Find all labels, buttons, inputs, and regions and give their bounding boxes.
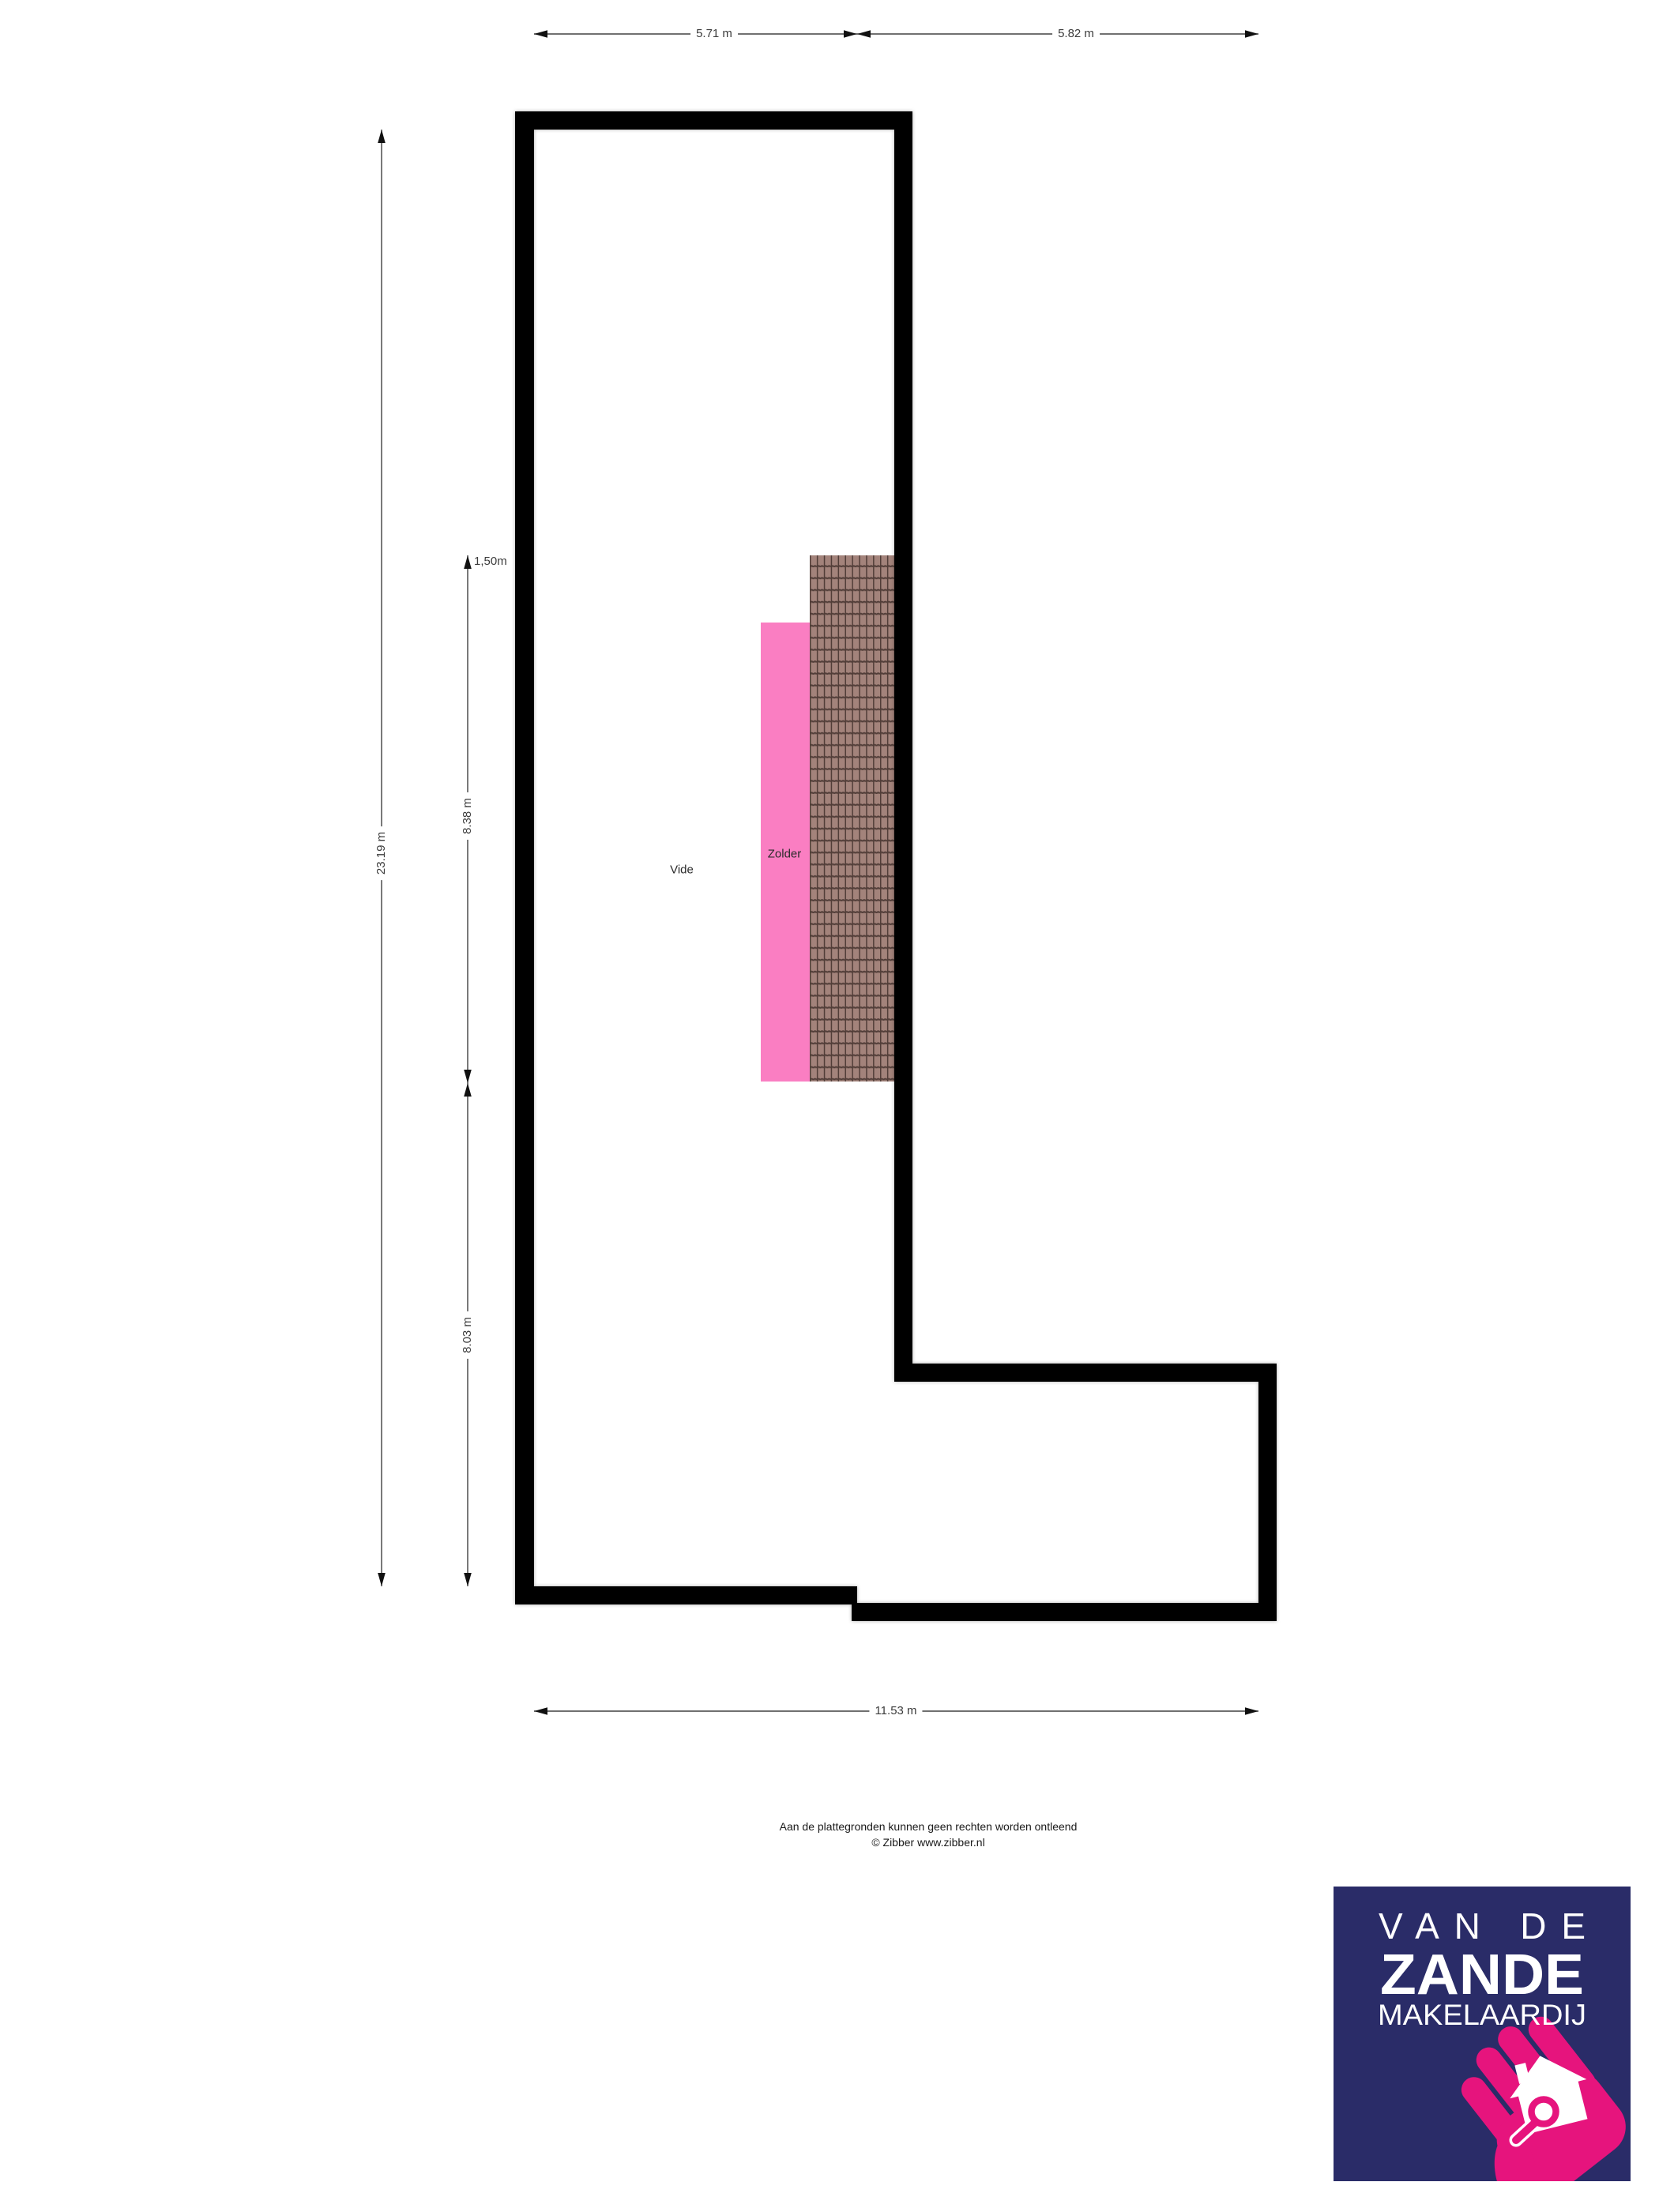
agency-logo: VAN DE ZANDE MAKELAARDIJ	[1334, 1887, 1637, 2212]
floorplan-page: VAN DE ZANDE MAKELAARDIJ 5.71 m 5.82 m 2…	[0, 0, 1659, 2212]
room-label-vide: Vide	[670, 863, 694, 877]
floorplan-drawing: VAN DE ZANDE MAKELAARDIJ	[0, 0, 1659, 2212]
room-label-zolder: Zolder	[768, 848, 802, 861]
dimension-label-left-total: 23.19 m	[374, 826, 389, 880]
disclaimer-line-2: © Zibber www.zibber.nl	[780, 1834, 1078, 1850]
wall-outline	[515, 111, 1277, 1621]
dimension-label-upper-segment: 8.38 m	[461, 792, 475, 840]
dimension-label-top-right: 5.82 m	[1052, 27, 1100, 41]
disclaimer: Aan de plattegronden kunnen geen rechten…	[780, 1819, 1078, 1850]
roof-slope-hatch	[810, 555, 894, 1082]
dimension-label-headroom: 1,50m	[474, 555, 507, 569]
dimension-label-top-left: 5.71 m	[690, 27, 738, 41]
logo-line-makelaardij: MAKELAARDIJ	[1378, 1999, 1586, 2031]
dimension-label-lower-segment: 8.03 m	[461, 1311, 475, 1359]
dimension-label-bottom-total: 11.53 m	[869, 1704, 922, 1718]
logo-line-zande: ZANDE	[1380, 1943, 1584, 2007]
disclaimer-line-1: Aan de plattegronden kunnen geen rechten…	[780, 1819, 1078, 1834]
